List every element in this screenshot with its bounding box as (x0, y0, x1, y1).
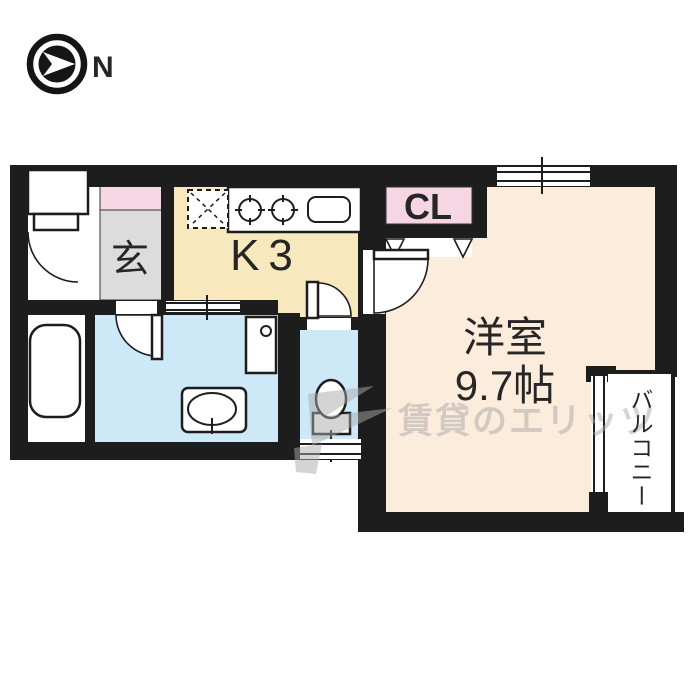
wall-bottom-right (358, 512, 684, 532)
washing-machine-pan (246, 317, 276, 373)
washing-machine-space (246, 317, 276, 373)
floor-plan-page: N (0, 0, 700, 700)
washroom-door-leaf (152, 315, 162, 359)
entrance-door-swing (28, 232, 78, 282)
western-room-label: 洋室 (463, 314, 547, 361)
toilet-door-leaf (307, 282, 318, 318)
watermark-logo-stamp (294, 444, 322, 474)
floor-plan: N (0, 0, 700, 700)
closet-label: CL (404, 186, 452, 227)
western-room-size: 9.7帖 (455, 362, 555, 409)
wall-balcony-stub-bottom (589, 492, 608, 514)
window-top-gap (497, 167, 590, 186)
entrance-door (28, 170, 88, 282)
kitchen-label: K3 (230, 231, 302, 280)
entrance-label: 玄 (111, 239, 149, 281)
entrance-door-leaf (28, 170, 88, 214)
wall-right (655, 165, 677, 377)
washroom-door-gap (116, 301, 157, 314)
bathtub (30, 325, 80, 417)
balcony-label: バルコニー (627, 388, 653, 508)
wall-washroom-toilet (278, 313, 300, 442)
wall-bath-washroom (85, 313, 95, 442)
vanity-sink (182, 388, 246, 434)
wall-left (10, 165, 28, 460)
north-compass: N (30, 37, 114, 91)
wall-closet-right (472, 187, 487, 238)
toilet-door-gap (307, 318, 351, 330)
western-door-leaf (374, 250, 428, 259)
north-label: N (92, 51, 114, 84)
refrigerator-space (188, 190, 228, 228)
entrance-step (34, 214, 78, 230)
kitchen-counter (228, 187, 361, 232)
wall-entrance-kitchen (161, 187, 174, 300)
